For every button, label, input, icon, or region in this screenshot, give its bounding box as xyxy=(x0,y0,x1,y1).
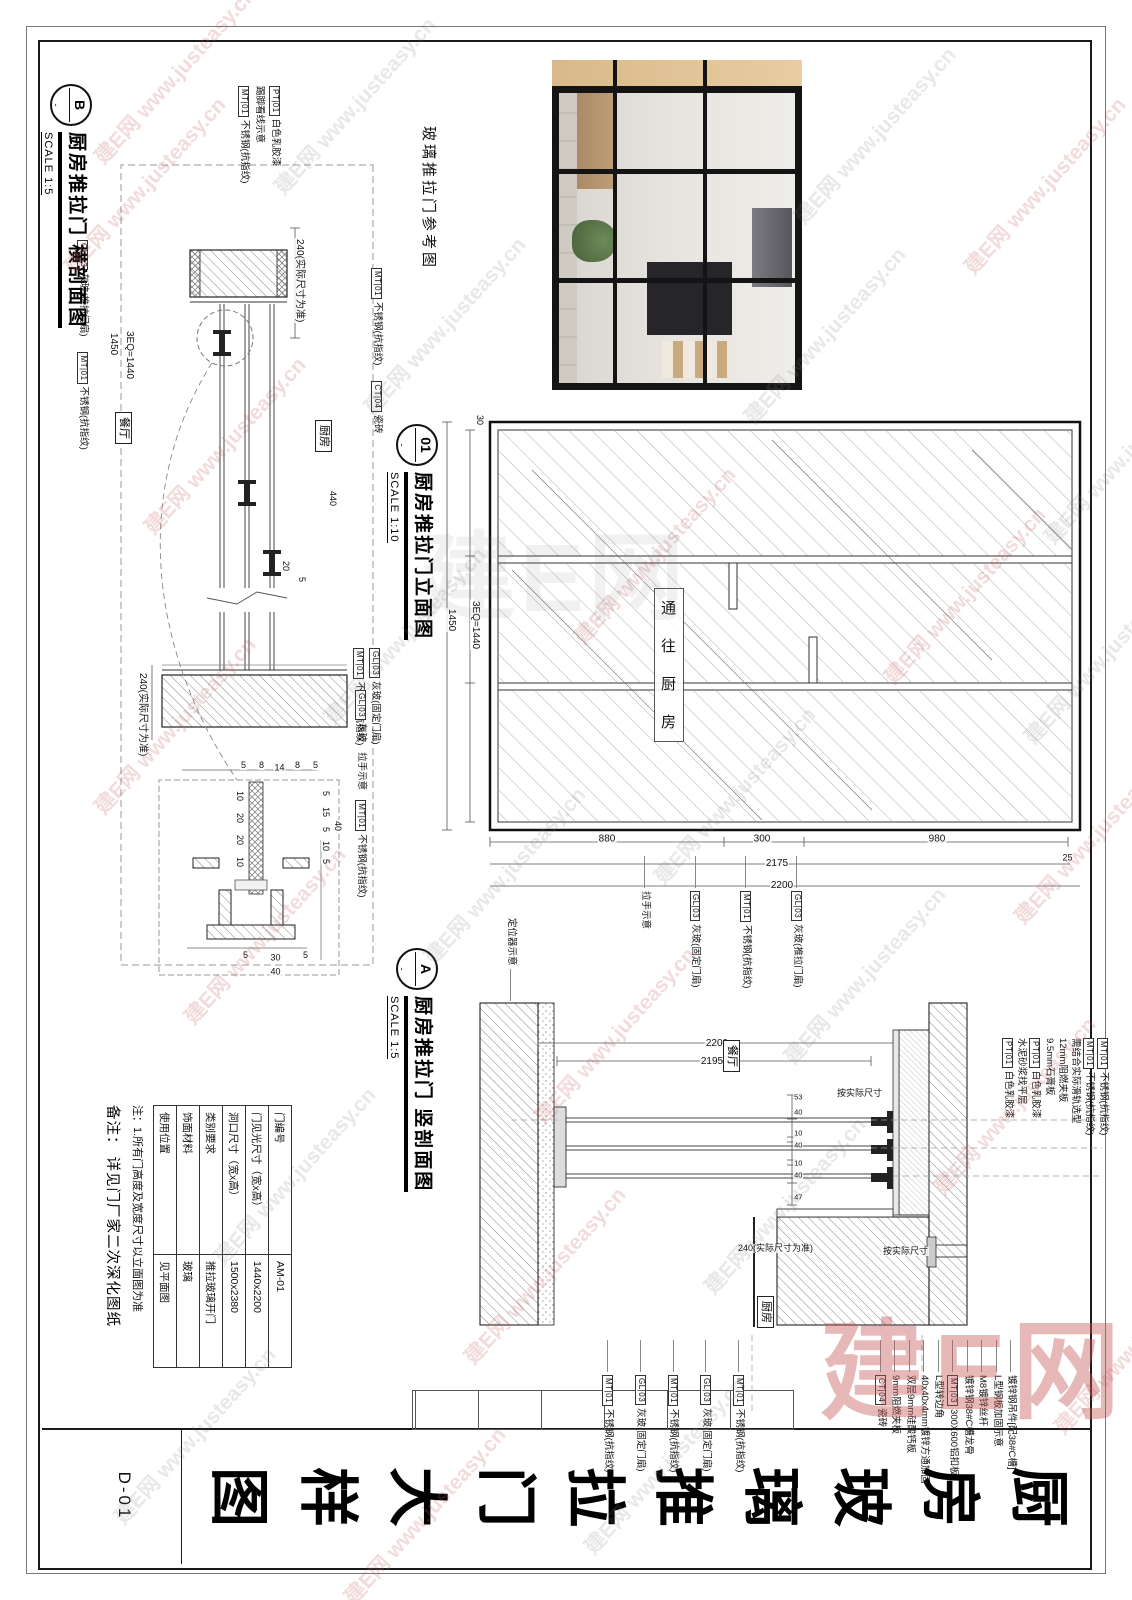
material-callout: PT|01白色乳胶漆 xyxy=(1002,1038,1013,1135)
glass-note-char: 厨 xyxy=(661,673,676,694)
callout-text: 灰玻 xyxy=(355,723,365,742)
a-detail-title: 厨房推拉门 竖剖面图 xyxy=(411,996,438,1192)
material-tag: MT|01 xyxy=(733,1375,744,1406)
leader-line xyxy=(695,856,696,888)
b-node-dim: 10 xyxy=(235,856,244,868)
b-node-dim: 14 xyxy=(273,764,285,773)
elev-detail-scale: SCALE 1:10 xyxy=(387,472,400,543)
big-title-char: 厨 xyxy=(1008,1467,1068,1527)
material-callout: PT|01白色乳胶漆 xyxy=(269,86,280,183)
material-callout: GL|03灰玻(推拉门扇) xyxy=(791,856,802,988)
b-node-dim-total: 40 xyxy=(333,820,342,832)
material-callout: GL|03灰玻(固定门扇) xyxy=(690,856,701,988)
material-tag: MT|01 xyxy=(668,1375,679,1406)
big-title-char: 样 xyxy=(297,1467,357,1527)
door-rail xyxy=(613,60,617,390)
door-rail xyxy=(703,60,707,390)
leader-line xyxy=(745,856,746,888)
material-callout: GL|03灰玻(固定门扇) xyxy=(635,1340,646,1472)
material-callout: MT|01不锈钢(抗指纹) xyxy=(602,1340,613,1472)
callout-text: 300X600铝扣板 xyxy=(948,1409,958,1476)
elev-dim-bottom-outer: 1450 xyxy=(446,608,456,632)
material-tag: MT|01 xyxy=(740,891,751,922)
b-detail-scale: SCALE 1:5 xyxy=(41,132,54,195)
callout-text: 灰玻(固定门扇) xyxy=(635,1408,645,1471)
material-callout: 9.5mm石膏板 xyxy=(1043,1038,1053,1135)
a-detail-header: 厨房推拉门 竖剖面图 SCALE 1:5 xyxy=(386,996,438,1192)
note-remark: 备注： 详见门厂家二次深化图纸 xyxy=(103,1105,124,1327)
material-tag: MT|03 xyxy=(947,1375,958,1406)
material-tag: GL|03 xyxy=(791,891,802,921)
b-dim-5: 5 xyxy=(297,576,306,583)
callout-text: 不锈钢(抗指纹) xyxy=(741,925,751,988)
elev-detail-title: 厨房推拉门立面图 xyxy=(411,472,438,640)
material-callout: MT|01不锈钢(抗指纹) xyxy=(355,800,366,897)
drawing-sheet-viewport: 厨房玻璃推拉门大样图 D-01 玻璃推拉门参考图 xyxy=(0,0,1132,1600)
material-callout: MT|01不锈钢(抗指纹) xyxy=(740,856,751,988)
callout-text: 灰玻(固定门扇) xyxy=(690,924,700,987)
b-detail-title: 厨房推拉门 横剖面图 xyxy=(65,132,92,328)
material-callout: CT|04瓷砖 xyxy=(875,1340,886,1484)
b-node-dim: 5 xyxy=(321,826,330,833)
b-node-dim: 5 xyxy=(321,790,330,797)
material-callout: MT|01不锈钢(抗指纹) xyxy=(733,1340,744,1472)
a-chain-dim: 40 xyxy=(793,1141,803,1149)
material-callout: MT|01不锈钢(抗指纹) xyxy=(668,1340,679,1472)
title-block-divider xyxy=(181,1430,182,1564)
callout-text: 不锈钢(抗指纹) xyxy=(355,834,365,897)
callout-text: 不锈钢(抗指纹) xyxy=(668,1409,678,1472)
b-dim-20: 20 xyxy=(281,560,290,572)
callout-text: L型钢板加固示意 xyxy=(991,1375,1001,1447)
a-dim-fit1: 按实际尺寸 xyxy=(836,1089,883,1098)
material-callout: MT|01不锈钢(抗指纹) xyxy=(238,86,249,183)
a-callouts-top: MT|01不锈钢(抗指纹)MT|01不锈钢(抗指纹)需结合实际滑轨选型12mm阻… xyxy=(1002,1038,1108,1135)
material-callout: MT|01不锈钢(抗指纹) xyxy=(1083,1038,1094,1135)
a-detail-bubble: A- xyxy=(396,948,438,990)
a-detail-scale: SCALE 1:5 xyxy=(387,996,400,1059)
leader-line xyxy=(952,1340,953,1372)
leader-line xyxy=(923,1340,924,1372)
callout-text: M8镀锌丝杆 xyxy=(977,1375,987,1426)
table-row: 饰面材料玻璃 xyxy=(177,1106,200,1368)
leader-line xyxy=(738,1340,739,1372)
material-callout: PT|01白色乳胶漆 xyxy=(1029,1038,1040,1135)
leader-line xyxy=(607,1340,608,1372)
material-callout: 镀锌钢吊件[配38#C槽] xyxy=(1006,1340,1016,1484)
material-tag: GL|03 xyxy=(690,891,701,921)
a-title-underline xyxy=(404,996,408,1192)
glass-note-char: 房 xyxy=(661,711,676,732)
leader-line xyxy=(510,969,511,1001)
a-callout-floor-guide: 定位器示意 xyxy=(506,918,516,1001)
big-title-char: 推 xyxy=(653,1467,713,1527)
b-callouts-top: MT|01不锈钢(抗指纹)CT|04瓷砖 xyxy=(371,268,382,434)
note-dimensions: 注：1.所有门高度及宽度尺寸以立面图为准 xyxy=(130,1105,146,1312)
material-callout: 12mm阻燃夹板 xyxy=(1057,1038,1067,1135)
door-stile xyxy=(552,169,802,174)
b-node-dim: 8 xyxy=(294,761,301,770)
callout-text: 瓷砖 xyxy=(371,415,381,434)
material-tag: MT|01 xyxy=(355,800,366,831)
a-room-kitchen: 厨房 xyxy=(757,1296,774,1328)
leader-line xyxy=(644,856,645,888)
callout-text: 40x40x4mm镀锌方通加固 xyxy=(919,1375,929,1484)
photo-wall-warm xyxy=(552,60,802,86)
b-room-dining: 餐厅 xyxy=(115,412,132,444)
material-callout: L型转边角 xyxy=(933,1340,943,1484)
elev-dim-980: 980 xyxy=(928,834,947,844)
photo-caption: 玻璃推拉门参考图 xyxy=(419,126,440,270)
callout-text: 拉手示意 xyxy=(355,752,365,790)
callout-text: 瓷砖 xyxy=(875,1408,885,1427)
landscape-sheet: 厨房玻璃推拉门大样图 D-01 玻璃推拉门参考图 xyxy=(0,0,1132,1600)
material-callout: 镀锌钢38#C槽龙骨 xyxy=(962,1340,972,1484)
a-chain-dim: 10 xyxy=(793,1159,803,1167)
elev-dim-30: 30 xyxy=(475,414,484,426)
material-callout: M8镀锌丝杆 xyxy=(977,1340,987,1484)
material-callout: CT|04瓷砖 xyxy=(371,381,382,433)
material-callout: L型钢板加固示意 xyxy=(991,1340,1001,1484)
b-title-underline xyxy=(58,132,62,328)
a-callouts-glass: MT|01不锈钢(抗指纹)GL|03灰玻(固定门扇)MT|01不锈钢(抗指纹)G… xyxy=(602,1340,744,1472)
b-dim-wall-left: 240(实际尺寸为准) xyxy=(294,238,304,323)
material-tag: MT|01 xyxy=(77,352,88,383)
b-node-dim: 8 xyxy=(258,761,265,770)
callout-text: 镀锌钢吊件[配38#C槽] xyxy=(1006,1375,1016,1470)
material-tag: GL|03 xyxy=(700,1375,711,1405)
glass-note-char: 往 xyxy=(661,635,676,656)
elev-dim-300: 300 xyxy=(753,834,772,844)
material-tag: GL|03 xyxy=(355,690,366,720)
callout-text: 9mm阻燃夹板 xyxy=(890,1375,900,1434)
callout-text: 踢脚看线示意 xyxy=(254,86,264,143)
big-title-char: 图 xyxy=(208,1467,268,1527)
material-callout: GL|03灰玻(固定门扇) xyxy=(700,1340,711,1472)
callout-text: 不锈钢(抗指纹) xyxy=(1084,1072,1094,1135)
leader-line xyxy=(996,1340,997,1372)
callout-text: 灰玻(推拉门扇) xyxy=(791,924,801,987)
a-callouts-right: 镀锌钢吊件[配38#C槽]L型钢板加固示意M8镀锌丝杆镀锌钢38#C槽龙骨MT|… xyxy=(875,1340,1016,1484)
a-chain-dim: 40 xyxy=(793,1108,803,1116)
a-room-dining: 餐厅 xyxy=(723,1040,740,1072)
reference-photo xyxy=(552,60,802,390)
b-node-dim: 30 xyxy=(269,954,281,963)
b-node-dim: 5 xyxy=(240,761,247,770)
a-dim-fit2: 按实际尺寸 xyxy=(882,1247,929,1256)
elev-title-underline xyxy=(404,472,408,640)
big-title-char: 拉 xyxy=(564,1467,624,1527)
big-title-char: 大 xyxy=(386,1467,446,1527)
b-node-callouts: GL|03灰玻拉手示意MT|01不锈钢(抗指纹) xyxy=(355,690,366,898)
b-node-dim: 20 xyxy=(235,812,244,824)
material-callout: 踢脚看线示意 xyxy=(254,86,264,183)
b-callouts-left: PT|01白色乳胶漆踢脚看线示意MT|01不锈钢(抗指纹) xyxy=(238,86,280,183)
a-chain-dim: 47 xyxy=(793,1193,803,1201)
callout-text: 水泥砂浆找平层 xyxy=(1016,1038,1026,1105)
callout-text: 白色乳胶漆 xyxy=(1029,1071,1039,1119)
callout-text: L型转边角 xyxy=(933,1375,943,1418)
material-tag: MT|01 xyxy=(1097,1038,1108,1069)
material-callout: MT|01不锈钢(抗指纹) xyxy=(371,268,382,365)
callout-text: 需结合实际滑轨选型 xyxy=(1070,1038,1080,1124)
elev-dim-25: 25 xyxy=(1061,854,1073,863)
b-node-dim: 15 xyxy=(321,806,330,818)
material-tag: GL|03 xyxy=(635,1375,646,1405)
leader-line xyxy=(1010,1340,1011,1372)
material-callout: GL|03灰玻 xyxy=(355,690,366,742)
material-tag: MT|01 xyxy=(1083,1038,1094,1069)
b-node-dim: 5 xyxy=(242,951,249,960)
leader-line xyxy=(938,1340,939,1372)
table-row: 洞口尺寸（宽x高）1500x2380 xyxy=(223,1106,246,1368)
b-node-dim: 5 xyxy=(321,858,330,865)
leader-line xyxy=(705,1340,706,1372)
material-tag: GL|03 xyxy=(369,648,380,678)
big-title-char: 璃 xyxy=(741,1467,801,1527)
b-dim-span: 3EQ=1440 xyxy=(124,330,134,380)
elevation-glass-note: 通往厨房 xyxy=(654,588,684,742)
door-stile xyxy=(552,278,802,283)
callout-text: 双层9mm硅酸钙板 xyxy=(904,1375,914,1453)
material-tag: PT|01 xyxy=(1029,1038,1040,1068)
elev-detail-bubble: 01- xyxy=(396,424,438,466)
a-chain-note: 240(实际尺寸为准) xyxy=(737,1244,814,1253)
b-detail-bubble: B- xyxy=(50,84,92,126)
material-callout: 40x40x4mm镀锌方通加固 xyxy=(919,1340,929,1484)
callout-text: 白色乳胶漆 xyxy=(269,119,279,167)
table-row: 门编号AM-01 xyxy=(269,1106,292,1368)
a-chain-dim: 40 xyxy=(793,1171,803,1179)
glass-door-frame xyxy=(552,86,802,390)
b-room-kitchen: 厨房 xyxy=(315,420,332,452)
material-callout: MT|03300X600铝扣板 xyxy=(947,1340,958,1484)
leader-line xyxy=(967,1340,968,1372)
callout-text: 9.5mm石膏板 xyxy=(1043,1038,1053,1096)
b-dim-total: 1450 xyxy=(108,332,118,356)
b-dim-440: 440 xyxy=(328,490,337,507)
material-callout: 拉手示意 xyxy=(639,856,649,988)
material-tag: MT|01 xyxy=(353,648,364,679)
leader-line xyxy=(981,1340,982,1372)
callout-text: 不锈钢(抗指纹) xyxy=(733,1409,743,1472)
leader-line xyxy=(880,1340,881,1372)
b-node-dim: 10 xyxy=(321,840,330,852)
material-tag: CT|04 xyxy=(875,1375,886,1405)
b-node-dim: 5 xyxy=(312,761,319,770)
leader-line xyxy=(909,1340,910,1372)
big-title-char: 门 xyxy=(475,1467,535,1527)
table-row: 类别要求推拉玻璃开门 xyxy=(200,1106,223,1368)
elev-detail-header: 厨房推拉门立面图 SCALE 1:10 xyxy=(386,472,438,640)
material-callout: 水泥砂浆找平层 xyxy=(1016,1038,1026,1135)
table-row: 门见光尺寸（宽x高）1440x2200 xyxy=(246,1106,269,1368)
a-chain-dim: 53 xyxy=(793,1093,803,1101)
leader-line xyxy=(894,1340,895,1372)
table-row: 使用位置见平面图 xyxy=(154,1106,177,1368)
b-node-dim-total: 40 xyxy=(269,968,281,977)
material-tag: PT|01 xyxy=(1002,1038,1013,1068)
callout-text: 不锈钢(抗指纹) xyxy=(602,1409,612,1472)
callout-text: 不锈钢(抗指纹) xyxy=(77,387,87,450)
b-dim-wall-right: 240(实际尺寸为准) xyxy=(137,672,147,757)
callout-text: 不锈钢(抗指纹) xyxy=(238,120,248,183)
b-detail-header: 厨房推拉门 横剖面图 SCALE 1:5 xyxy=(40,132,92,328)
material-tag: CT|04 xyxy=(371,381,382,411)
elevation-callouts: GL|03灰玻(推拉门扇)MT|01不锈钢(抗指纹)GL|03灰玻(固定门扇)拉… xyxy=(639,856,802,988)
glass-note-char: 通 xyxy=(661,597,676,618)
callout-text: 灰玻(固定门扇) xyxy=(701,1408,711,1471)
leader-line xyxy=(673,1340,674,1372)
b-node-dim: 5 xyxy=(302,951,309,960)
callout-text: 灰玻(固定门扇) xyxy=(369,681,379,744)
b-node-dim: 20 xyxy=(235,834,244,846)
material-callout: 拉手示意 xyxy=(355,752,366,790)
material-tag: MT|01 xyxy=(371,268,382,299)
a-dim-2195: 2195 xyxy=(700,1057,724,1067)
callout-text: 不锈钢(抗指纹) xyxy=(371,302,381,365)
callout-text: 镀锌钢38#C槽龙骨 xyxy=(962,1375,972,1455)
material-tag: MT|01 xyxy=(602,1375,613,1406)
door-spec-table: 门编号AM-01 门见光尺寸（宽x高）1440x2200 洞口尺寸（宽x高）15… xyxy=(153,1105,292,1368)
material-tag: MT|01 xyxy=(238,86,249,117)
b-node-dim: 10 xyxy=(235,790,244,802)
material-callout: 双层9mm硅酸钙板 xyxy=(904,1340,914,1484)
callout-text: 白色乳胶漆 xyxy=(1002,1071,1012,1119)
material-callout: 9mm阻燃夹板 xyxy=(890,1340,900,1484)
elev-dim-880: 880 xyxy=(598,834,617,844)
material-callout: 需结合实际滑轨选型 xyxy=(1070,1038,1080,1135)
material-tag: PT|01 xyxy=(269,86,280,116)
callout-text: 拉手示意 xyxy=(639,891,649,929)
sheet-number: D-01 xyxy=(114,1428,134,1564)
leader-line xyxy=(796,856,797,888)
a-chain-dim: 10 xyxy=(793,1129,803,1137)
material-callout: MT|01不锈钢(抗指纹) xyxy=(1097,1038,1108,1135)
elev-dim-bottom-inner: 3EQ=1440 xyxy=(470,600,480,650)
leader-line xyxy=(640,1340,641,1372)
callout-text: 12mm阻燃夹板 xyxy=(1057,1038,1067,1102)
material-callout: MT|01不锈钢(抗指纹) xyxy=(77,352,88,449)
material-callout: GL|03灰玻(固定门扇) xyxy=(369,648,380,745)
callout-text: 不锈钢(抗指纹) xyxy=(1097,1072,1107,1135)
